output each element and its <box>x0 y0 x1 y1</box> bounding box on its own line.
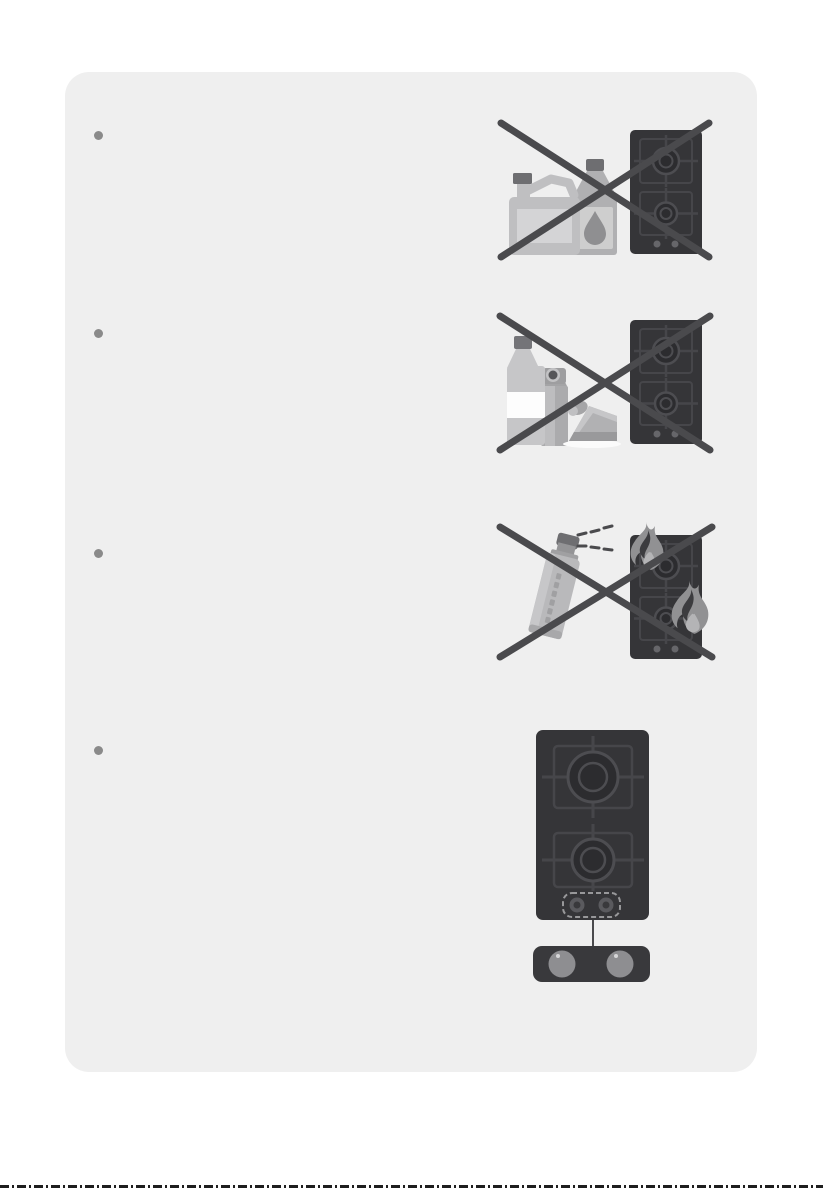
bullet-marker: • <box>94 131 103 140</box>
bullet-marker: • <box>94 746 103 755</box>
aerosol-spray-and-burning-hob-crossed-icon <box>492 515 722 667</box>
bullet-marker: • <box>94 549 103 558</box>
manual-page: • <box>0 0 823 1192</box>
flammable-liquid-containers-and-hob-crossed-icon <box>495 115 715 263</box>
safety-warnings-panel: • <box>65 72 757 1072</box>
bottle-spray-cake-and-hob-crossed-icon <box>495 310 715 458</box>
control-knob-icon <box>549 951 576 978</box>
warning-text-area <box>117 124 473 244</box>
gas-hob-top-view-icon <box>536 730 649 920</box>
hob-top-view-with-control-knob-panel-icon <box>530 728 655 983</box>
control-knob-panel-icon <box>533 946 650 982</box>
warning-text-area <box>117 322 473 442</box>
control-knob-icon <box>607 951 634 978</box>
spray-mist-dashes-icon <box>578 526 612 550</box>
warning-text-area <box>117 739 473 979</box>
page-bottom-cut-line <box>0 1185 823 1188</box>
bullet-marker: • <box>94 329 103 338</box>
warning-text-area <box>117 542 473 662</box>
